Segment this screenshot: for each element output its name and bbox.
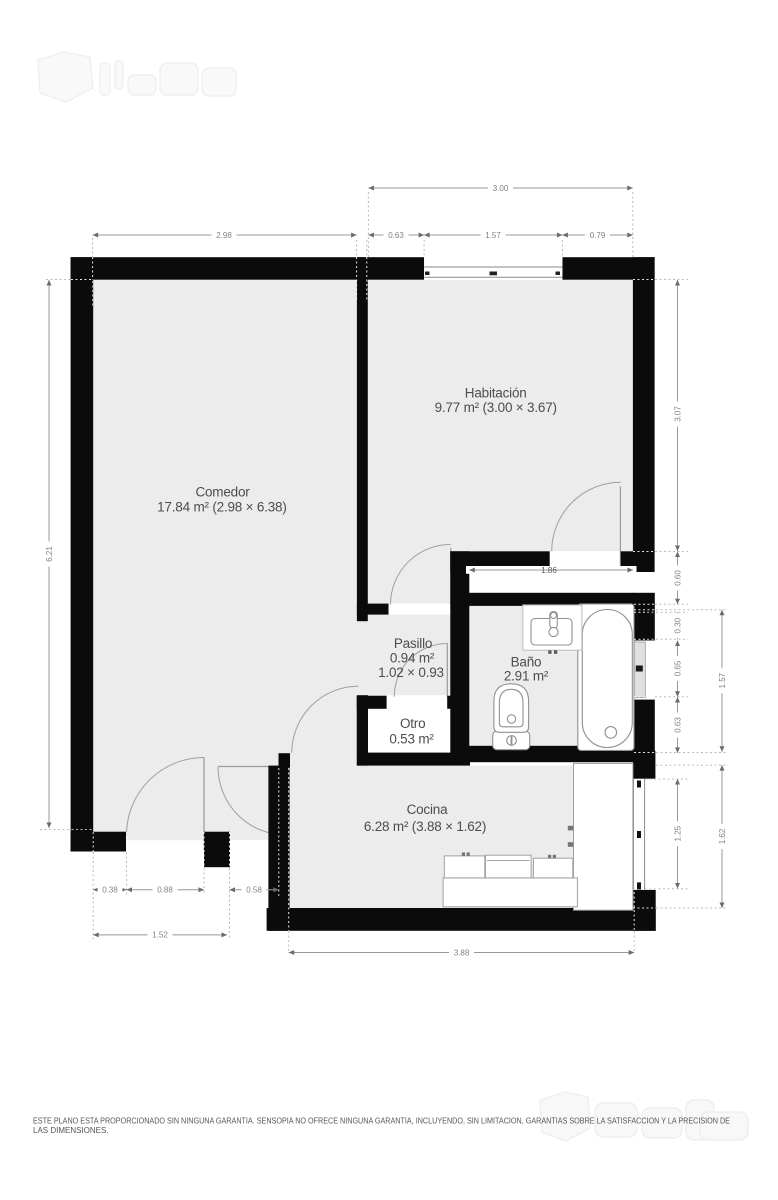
svg-text:3.88: 3.88 [454,948,470,957]
svg-text:1.86: 1.86 [541,566,557,575]
svg-text:0.94 m²: 0.94 m² [390,651,435,666]
svg-text:0.30: 0.30 [674,617,683,633]
svg-text:2.98: 2.98 [216,231,232,240]
svg-text:1.57: 1.57 [718,672,727,688]
svg-text:0.88: 0.88 [157,886,173,895]
svg-text:0.79: 0.79 [590,231,606,240]
svg-text:0.65: 0.65 [674,660,683,676]
svg-text:6.21: 6.21 [45,546,54,562]
svg-text:1.57: 1.57 [485,231,501,240]
svg-text:2.91 m²: 2.91 m² [504,669,549,684]
svg-text:Comedor: Comedor [195,485,250,500]
svg-text:Habitación: Habitación [465,386,527,401]
svg-text:Otro: Otro [400,716,425,731]
svg-text:1.02 × 0.93: 1.02 × 0.93 [378,665,444,680]
svg-text:0.58: 0.58 [246,886,262,895]
svg-text:0.53 m²: 0.53 m² [389,732,434,747]
svg-text:0.63: 0.63 [674,717,683,733]
svg-text:0.38: 0.38 [102,886,118,895]
svg-text:9.77 m² (3.00 × 3.67): 9.77 m² (3.00 × 3.67) [435,400,557,415]
svg-text:1.52: 1.52 [152,931,168,940]
svg-text:Baño: Baño [511,655,542,670]
svg-text:0.60: 0.60 [674,570,683,586]
svg-text:Cocina: Cocina [407,802,449,817]
svg-text:0.63: 0.63 [388,231,404,240]
svg-text:1.25: 1.25 [674,825,683,841]
svg-text:LAS DIMENSIONES.: LAS DIMENSIONES. [33,1126,109,1135]
svg-text:Pasillo: Pasillo [394,636,432,651]
svg-text:3.00: 3.00 [493,184,509,193]
svg-text:17.84 m² (2.98 × 6.38): 17.84 m² (2.98 × 6.38) [157,500,287,515]
svg-text:ESTE PLANO ESTA PROPORCIONADO: ESTE PLANO ESTA PROPORCIONADO SIN NINGUN… [33,1117,730,1126]
svg-text:1.62: 1.62 [718,828,727,844]
svg-text:3.07: 3.07 [674,406,683,422]
svg-text:6.28 m² (3.88 × 1.62): 6.28 m² (3.88 × 1.62) [364,819,486,834]
